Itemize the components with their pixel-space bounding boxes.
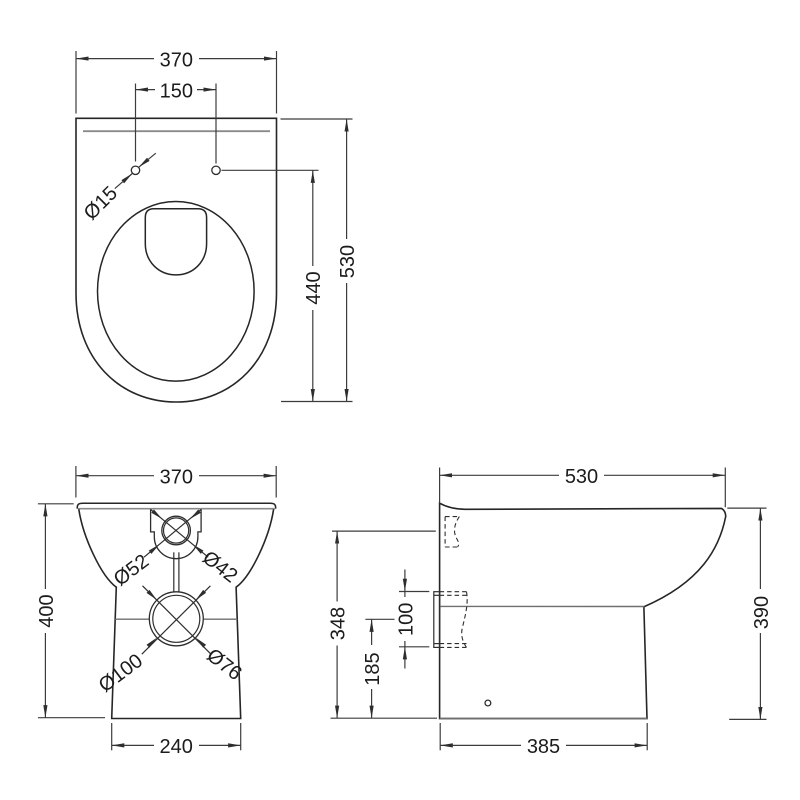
svg-text:385: 385 xyxy=(527,736,560,758)
svg-text:440: 440 xyxy=(303,271,325,304)
svg-text:530: 530 xyxy=(337,245,359,278)
svg-text:150: 150 xyxy=(160,80,193,102)
svg-text:Ø42: Ø42 xyxy=(198,547,241,588)
svg-text:370: 370 xyxy=(160,49,193,71)
svg-text:400: 400 xyxy=(36,594,58,627)
svg-text:530: 530 xyxy=(565,466,598,488)
svg-text:100: 100 xyxy=(395,603,417,636)
svg-text:240: 240 xyxy=(160,736,193,758)
svg-text:390: 390 xyxy=(751,596,773,629)
svg-text:Ø52: Ø52 xyxy=(110,550,153,590)
svg-text:Ø100: Ø100 xyxy=(95,650,147,697)
svg-text:185: 185 xyxy=(362,652,384,685)
svg-text:370: 370 xyxy=(160,466,193,488)
svg-text:348: 348 xyxy=(328,607,350,640)
